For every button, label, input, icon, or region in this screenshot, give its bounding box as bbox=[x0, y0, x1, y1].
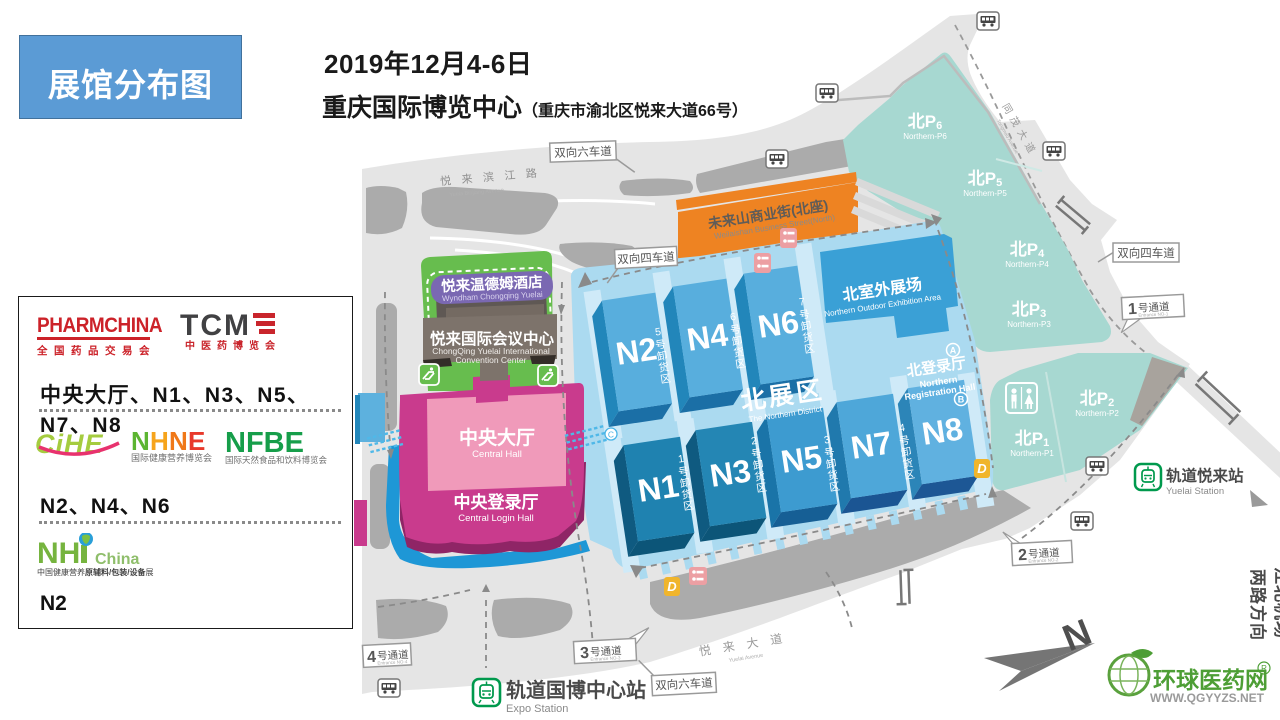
svg-text:C: C bbox=[608, 430, 614, 440]
svg-text:两路方向: 两路方向 bbox=[1248, 569, 1268, 641]
svg-text:E: E bbox=[188, 426, 205, 456]
svg-text:N: N bbox=[169, 426, 188, 456]
svg-text:Northern-P5: Northern-P5 bbox=[963, 189, 1007, 198]
svg-text:N: N bbox=[131, 426, 150, 456]
svg-text:轨道悦来站: 轨道悦来站 bbox=[1166, 466, 1244, 485]
svg-text:A: A bbox=[950, 346, 957, 356]
svg-text:N4: N4 bbox=[684, 316, 730, 358]
svg-text:Northern-P4: Northern-P4 bbox=[1005, 260, 1049, 269]
svg-text:中央登录厅: 中央登录厅 bbox=[454, 492, 539, 512]
svg-text:Northern-P2: Northern-P2 bbox=[1075, 409, 1119, 418]
svg-text:N5: N5 bbox=[778, 438, 824, 480]
svg-text:China: China bbox=[95, 551, 140, 568]
svg-text:1: 1 bbox=[1128, 301, 1138, 318]
svg-text:R: R bbox=[1261, 664, 1267, 673]
svg-text:2: 2 bbox=[1018, 547, 1028, 564]
svg-text:Northern-P1: Northern-P1 bbox=[1010, 449, 1054, 458]
svg-text:Central Login Hall: Central Login Hall bbox=[458, 513, 534, 524]
svg-text:中医药博览会: 中医药博览会 bbox=[185, 339, 281, 352]
svg-text:双向四车道: 双向四车道 bbox=[1117, 246, 1175, 260]
svg-text:B: B bbox=[958, 395, 965, 405]
svg-text:3: 3 bbox=[580, 645, 590, 662]
svg-text:Central Hall: Central Hall bbox=[472, 449, 522, 460]
svg-text:Northern-P3: Northern-P3 bbox=[1007, 320, 1051, 329]
svg-text:环球医药网: 环球医药网 bbox=[1153, 667, 1268, 693]
svg-text:H: H bbox=[150, 426, 169, 456]
svg-text:Yuelai Avenue: Yuelai Avenue bbox=[728, 653, 763, 664]
svg-text:N8: N8 bbox=[919, 410, 965, 452]
svg-text:Expo Station: Expo Station bbox=[506, 703, 568, 715]
svg-text:国际健康营养博览会: 国际健康营养博览会 bbox=[131, 452, 212, 463]
svg-text:N3: N3 bbox=[707, 452, 753, 494]
svg-text:NH: NH bbox=[37, 537, 80, 570]
svg-text:WWW.QGYYZS.NET: WWW.QGYYZS.NET bbox=[1150, 691, 1265, 705]
svg-text:轨道国博中心站: 轨道国博中心站 bbox=[506, 678, 646, 702]
svg-text:Convention Center: Convention Center bbox=[456, 355, 527, 365]
svg-text:国际天然食品和饮料博览会: 国际天然食品和饮料博览会 bbox=[225, 455, 328, 465]
svg-text:N6: N6 bbox=[755, 303, 801, 345]
svg-text:N7: N7 bbox=[848, 424, 894, 466]
svg-text:Northern-P6: Northern-P6 bbox=[903, 132, 947, 141]
svg-text:4: 4 bbox=[367, 649, 377, 666]
svg-text:江北机场: 江北机场 bbox=[1272, 567, 1280, 639]
svg-text:Yuelai Station: Yuelai Station bbox=[1166, 486, 1224, 497]
svg-text:N1: N1 bbox=[635, 467, 681, 509]
svg-text:D: D bbox=[977, 461, 987, 476]
svg-text:D: D bbox=[667, 579, 677, 594]
svg-text:中央大厅: 中央大厅 bbox=[459, 426, 535, 449]
svg-text:中国健康营养原辅料/包装/设备展: 中国健康营养原辅料/包装/设备展 bbox=[37, 567, 153, 577]
svg-text:TCM: TCM bbox=[180, 309, 251, 342]
